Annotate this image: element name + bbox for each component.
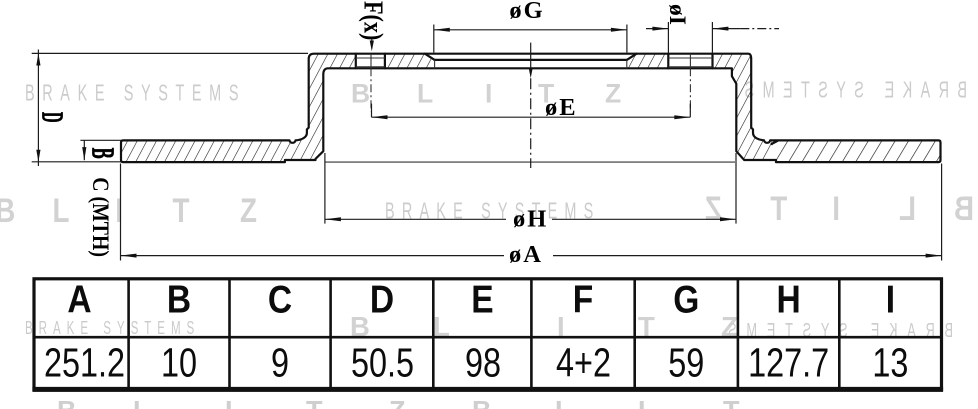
svg-text:øH: øH (513, 206, 548, 233)
svg-text:4+2: 4+2 (556, 340, 611, 385)
svg-text:10: 10 (161, 340, 197, 385)
svg-text:B: B (167, 277, 191, 321)
svg-text:F: F (573, 277, 593, 321)
svg-text:BRAKE SYSTEMS: BRAKE SYSTEMS (25, 80, 246, 106)
svg-text:59: 59 (668, 340, 704, 385)
svg-text:A: A (67, 277, 91, 321)
svg-text:I: I (886, 277, 895, 321)
svg-text:C (MTH): C (MTH) (87, 177, 113, 257)
svg-text:D: D (35, 112, 68, 123)
svg-text:D: D (370, 277, 394, 321)
svg-text:251.2: 251.2 (44, 340, 125, 385)
svg-text:BRAKE SYSTEMS: BRAKE SYSTEMS (736, 77, 967, 103)
svg-text:F(x): F(x) (358, 1, 388, 40)
svg-text:B: B (85, 148, 119, 159)
svg-text:øG: øG (509, 0, 544, 24)
svg-text:C: C (268, 277, 292, 321)
svg-text:BRAKE SYSTEMS: BRAKE SYSTEMS (385, 198, 600, 224)
svg-text:50.5: 50.5 (351, 340, 414, 385)
svg-text:øE: øE (545, 94, 578, 121)
svg-text:H: H (776, 277, 800, 321)
svg-text:9: 9 (271, 340, 289, 385)
svg-text:98: 98 (465, 340, 501, 385)
svg-text:øA: øA (509, 241, 543, 268)
svg-text:13: 13 (872, 340, 908, 385)
svg-text:BRAKE SYSTEMS: BRAKE SYSTEMS (25, 318, 200, 338)
svg-text:127.7: 127.7 (748, 340, 829, 385)
svg-text:G: G (673, 277, 699, 321)
svg-text:øI: øI (664, 4, 690, 25)
svg-text:E: E (471, 277, 493, 321)
